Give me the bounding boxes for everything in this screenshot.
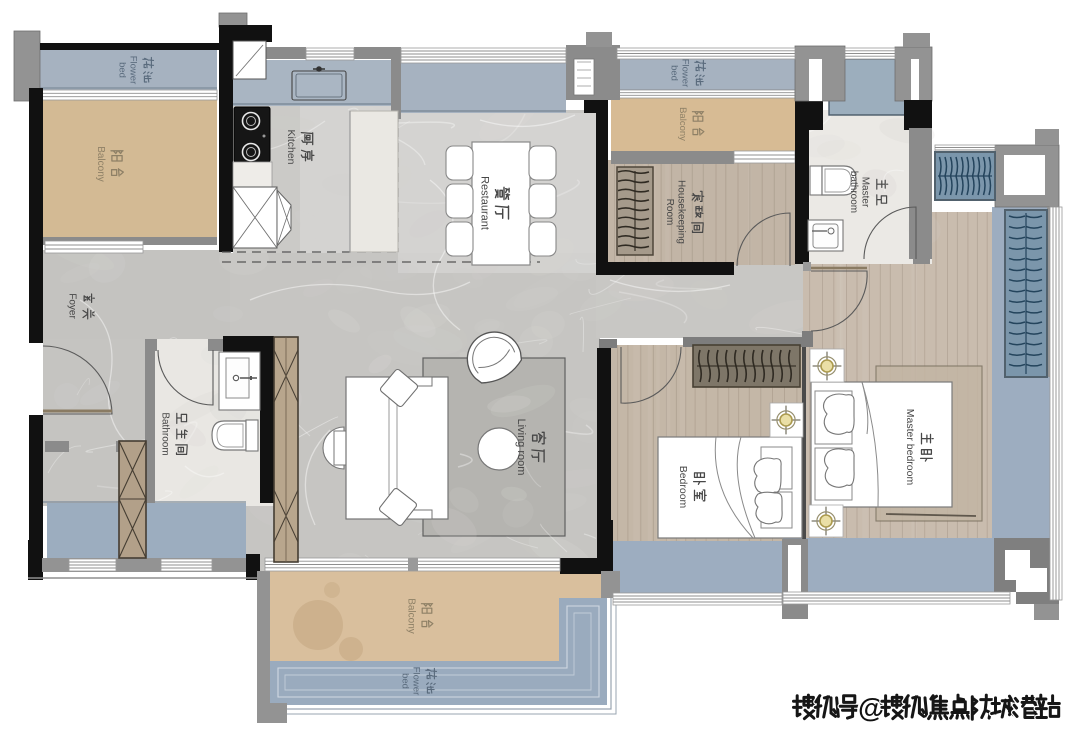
svg-text:Master bedroom: Master bedroom xyxy=(904,409,916,486)
svg-text:Living room: Living room xyxy=(515,419,527,476)
svg-text:Flower: Flower xyxy=(128,56,139,85)
svg-text:Balcony: Balcony xyxy=(95,146,106,182)
svg-text:Bathroom: Bathroom xyxy=(160,412,171,455)
svg-text:bed: bed xyxy=(669,65,680,81)
svg-text:Restaurant: Restaurant xyxy=(479,176,491,230)
svg-text:Housekeeping: Housekeeping xyxy=(676,180,687,244)
svg-text:Bedroom: Bedroom xyxy=(677,466,689,509)
svg-text:Flower: Flower xyxy=(411,667,422,696)
svg-text:Balcony: Balcony xyxy=(406,598,417,634)
svg-text:Foyer: Foyer xyxy=(67,293,78,319)
svg-text:Kitchen: Kitchen xyxy=(285,129,297,164)
svg-text:bed: bed xyxy=(117,62,128,78)
svg-text:bathroom: bathroom xyxy=(848,171,859,213)
svg-text:Balcony: Balcony xyxy=(677,107,688,141)
svg-text:Master: Master xyxy=(860,177,871,208)
svg-text:bed: bed xyxy=(400,673,411,689)
svg-text:Flower: Flower xyxy=(680,59,691,88)
svg-text:Room: Room xyxy=(664,199,675,226)
